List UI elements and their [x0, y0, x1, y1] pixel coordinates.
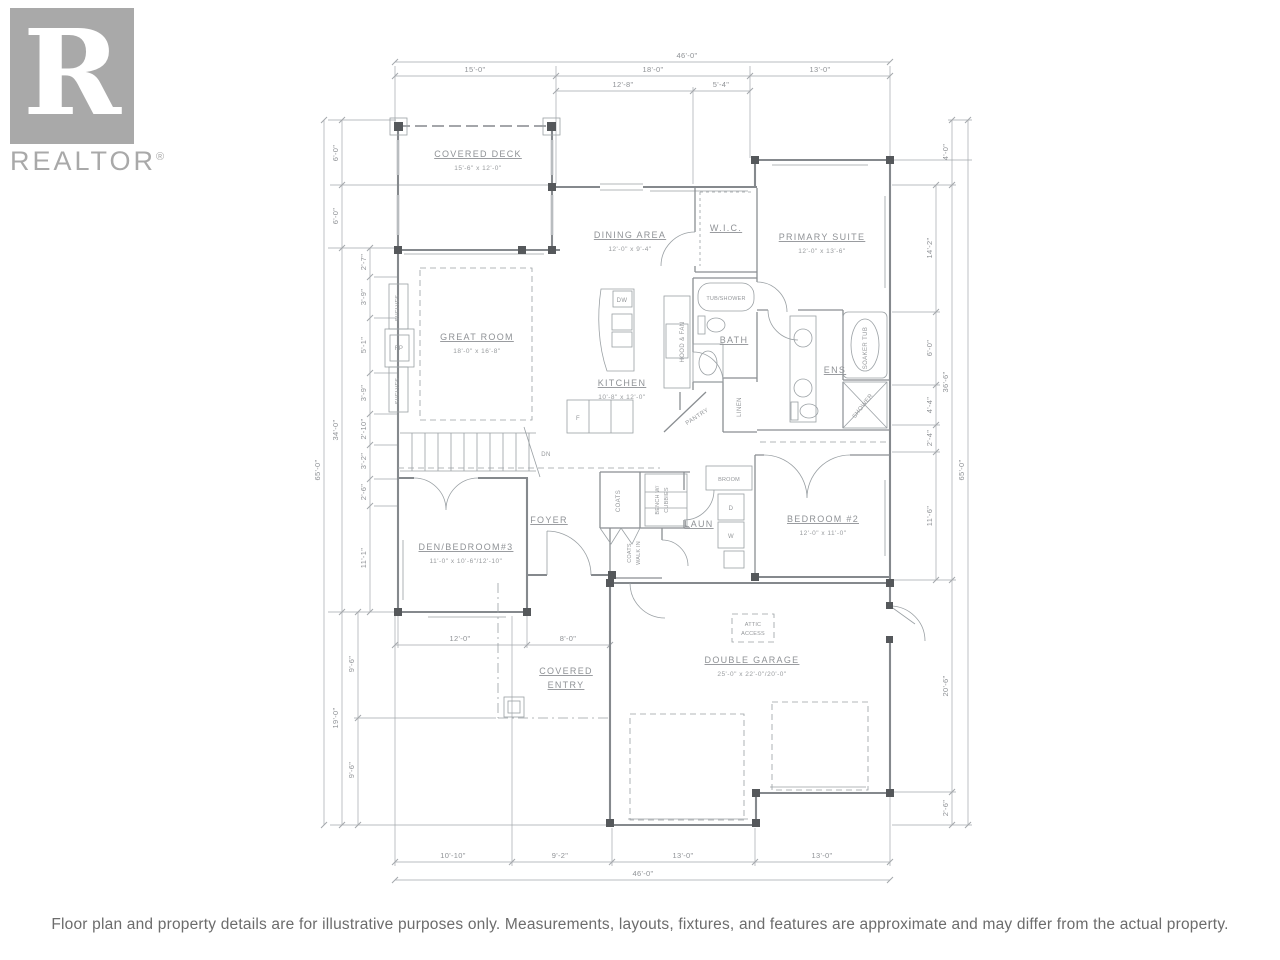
- entry-column-outer: [504, 697, 524, 717]
- floor-plan: 46'-0" 15'-0" 18'-0" 13'-0" 12'-8" 5'-4"…: [0, 0, 1280, 960]
- attic-access-box: [732, 614, 774, 642]
- dim-top-3: 13'-0": [810, 65, 831, 74]
- room-label-covered-deck: COVERED DECK: [434, 149, 522, 159]
- room-label-covered-entry-2: ENTRY: [548, 680, 585, 690]
- room-dims-primary: 12'-0" x 13'-6": [798, 248, 846, 255]
- label-coats: COATS: [616, 490, 622, 512]
- ens-sink-1: [794, 329, 812, 347]
- dim-right-m1: 4'-0": [941, 144, 950, 160]
- disclaimer-text: Floor plan and property details are for …: [0, 916, 1280, 934]
- ens-sink-2: [794, 379, 812, 397]
- dim-left-s6: 3'-2": [359, 453, 368, 469]
- ens-toilet-tank: [791, 402, 798, 420]
- label-fireplace: FP: [395, 346, 403, 352]
- great-room-ceiling-dash: [420, 268, 532, 420]
- dim-right-m2: 36'-6": [941, 372, 950, 393]
- dim-top-1: 15'-0": [465, 65, 486, 74]
- kitchen-sink-1: [612, 314, 632, 330]
- dim-bottom-4: 13'-0": [812, 851, 833, 860]
- stairs: [400, 427, 540, 477]
- label-shelves-upper: SHELVES: [395, 295, 401, 321]
- label-dryer: D: [729, 506, 734, 512]
- room-dims-dining: 12'-0" x 9'-4": [608, 246, 652, 253]
- dim-top-total: 46'-0": [677, 51, 698, 60]
- room-dims-den: 11'-0" x 10'-6"/12'-10": [430, 558, 503, 565]
- label-soaker-tub: SOAKER TUB: [863, 327, 869, 370]
- label-walkin-2: WALK IN: [636, 541, 642, 565]
- room-label-great: GREAT ROOM: [440, 332, 514, 342]
- dim-left-total: 65'-0": [313, 460, 322, 481]
- label-hood-fan: HOOD & FAN: [680, 321, 686, 362]
- dim-right-m4: 2'-6": [941, 800, 950, 816]
- laundry-sink: [724, 551, 744, 568]
- dim-right-m3: 20'-6": [941, 676, 950, 697]
- label-tub-shower: TUB/SHOWER: [706, 296, 745, 302]
- dim-left-s3: 5'-1": [359, 337, 368, 353]
- dim-left-inner-2: 9'-6": [347, 762, 356, 778]
- dim-bottom-2: 9'-2": [552, 851, 568, 860]
- label-linen: LINEN: [737, 397, 743, 417]
- label-attic-2: ACCESS: [741, 631, 765, 637]
- dim-bottom-1: 10'-10": [440, 851, 465, 860]
- garage-car-left: [630, 714, 744, 820]
- room-dims-great: 18'-0" x 16'-8": [453, 348, 501, 355]
- dim-entry-1: 12'-0": [450, 634, 471, 643]
- room-label-dining: DINING AREA: [594, 230, 666, 240]
- dim-left-s8: 11'-1": [359, 548, 368, 568]
- label-dishwasher: DW: [617, 298, 628, 304]
- room-label-primary: PRIMARY SUITE: [779, 232, 866, 242]
- bath-sink: [699, 351, 717, 375]
- dim-bottom-3: 13'-0": [673, 851, 694, 860]
- room-label-kitchen: KITCHEN: [598, 378, 647, 388]
- room-label-bed2: BEDROOM #2: [787, 514, 859, 524]
- label-attic-1: ATTIC: [745, 622, 761, 628]
- dim-top-sub-1: 12'-8": [613, 80, 634, 89]
- kitchen-counter: [664, 296, 690, 388]
- dim-left-mid-1: 6'-0": [331, 145, 340, 161]
- dimension-labels: 46'-0" 15'-0" 18'-0" 13'-0" 12'-8" 5'-4"…: [313, 51, 966, 878]
- dim-top-sub-2: 5'-4": [713, 80, 729, 89]
- room-label-garage: DOUBLE GARAGE: [705, 655, 800, 665]
- dim-right-i1: 14'-2": [925, 238, 934, 259]
- door-swings: [414, 232, 925, 641]
- room-dims-garage: 25'-0" x 22'-0"/20'-0": [717, 671, 787, 678]
- dim-right-i2: 6'-0": [925, 340, 934, 356]
- garage-car-right: [772, 702, 868, 790]
- room-label-den: DEN/BEDROOM#3: [419, 542, 514, 552]
- label-bench-1: BENCH W/: [655, 485, 661, 514]
- dim-right-i5: 11'-6": [925, 506, 934, 526]
- room-dims-covered-deck: 15'-6" x 12'-0": [454, 165, 502, 172]
- label-shower: SHOWER: [852, 393, 875, 420]
- label-bench-2: CUBBIES: [664, 487, 670, 513]
- room-label-foyer: FOYER: [530, 515, 568, 525]
- fridge-divider: [589, 400, 611, 433]
- room-dims-bed2: 12'-0" x 11'-0": [800, 530, 847, 537]
- dim-top-2: 18'-0": [643, 65, 664, 74]
- bath-vanity: [693, 344, 723, 382]
- dashed-lines: [398, 192, 888, 820]
- label-stairs-dn: DN: [541, 452, 550, 458]
- dim-entry-2: 8'-0": [560, 634, 576, 643]
- ens-toilet-bowl: [800, 404, 818, 418]
- label-washer: W: [728, 534, 734, 540]
- room-label-bath: BATH: [720, 335, 749, 345]
- dim-right-i4: 2'-4": [925, 430, 934, 446]
- label-shelves-lower: SHELVES: [395, 378, 401, 404]
- wall-posts: [394, 122, 894, 827]
- room-label-laun: LAUN: [684, 519, 713, 529]
- dim-left-s2: 3'-9": [359, 289, 368, 305]
- entry-column-inner: [508, 701, 520, 713]
- bath-toilet-tank: [698, 316, 705, 334]
- dim-left-s4: 3'-9": [359, 385, 368, 401]
- bath-toilet-bowl: [707, 318, 725, 332]
- kitchen-sink-2: [612, 332, 632, 347]
- fixture-labels: TUB/SHOWER SOAKER TUB SHOWER LINEN PANTR…: [395, 295, 875, 637]
- dim-left-mid-3: 34'-0": [331, 420, 340, 441]
- room-label-wic: W.I.C.: [710, 223, 742, 233]
- room-label-ens: ENS: [824, 365, 846, 375]
- dim-left-inner-1: 9'-6": [347, 656, 356, 672]
- label-pantry: PANTRY: [685, 408, 710, 427]
- fixtures: [385, 118, 887, 717]
- dim-right-total: 65'-0": [957, 460, 966, 481]
- dim-right-i3: 4'-4": [925, 397, 934, 413]
- dim-bottom-total: 46'-0": [633, 869, 654, 878]
- dim-left-s1: 2'-7": [359, 254, 368, 270]
- label-broom: BROOM: [718, 477, 740, 483]
- dim-left-s5: 2'-10": [359, 419, 368, 440]
- room-dims-kitchen: 10'-8" x 12'-0": [598, 394, 646, 401]
- label-fridge: F: [576, 416, 580, 422]
- label-walkin-1: COATS: [627, 543, 633, 563]
- dim-left-mid-2: 6'-0": [331, 208, 340, 224]
- room-label-covered-entry-1: COVERED: [539, 666, 593, 676]
- dim-left-mid-4: 19'-0": [331, 708, 340, 729]
- dim-left-s7: 2'-6": [359, 484, 368, 500]
